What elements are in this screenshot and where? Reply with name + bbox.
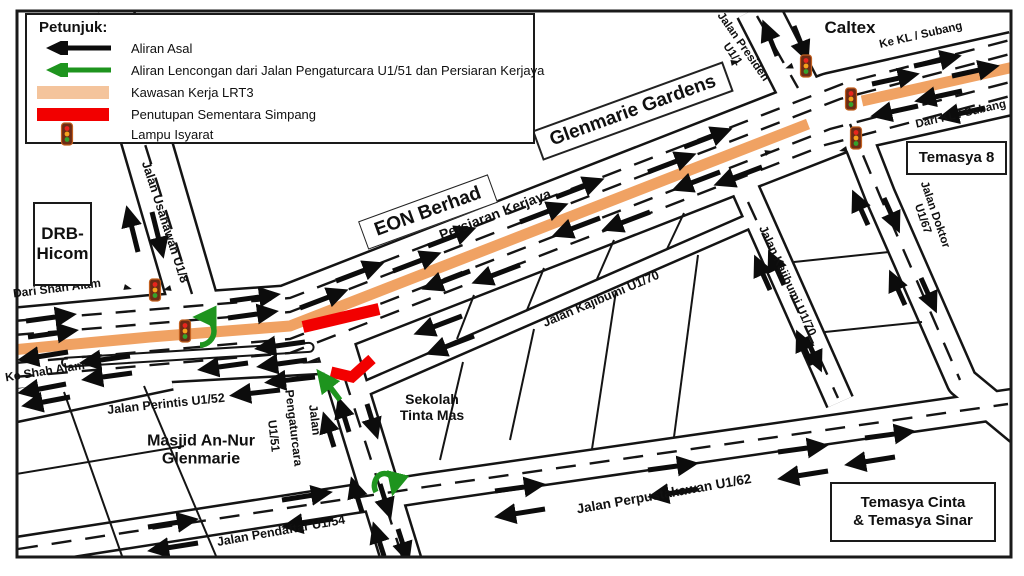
place-masjid: Masjid An-Nur Glenmarie	[147, 433, 255, 470]
closure-swatch	[37, 108, 109, 121]
legend-label: Aliran Lencongan dari Jalan Pengaturcara…	[131, 63, 544, 78]
place-temasya-cinta-sinar: Temasya Cinta & Temasya Sinar	[830, 482, 996, 542]
road-label-pengaturcara-word1: Jalan	[305, 404, 322, 436]
place-temasya-cinta-line2: & Temasya Sinar	[853, 512, 973, 530]
traffic-light-icon	[150, 279, 161, 301]
place-sekolah-line1: Sekolah	[400, 391, 464, 407]
place-drb-hicom: DRB- Hicom	[33, 202, 92, 286]
traffic-light-icon	[851, 127, 862, 149]
place-masjid-line2: Glenmarie	[147, 451, 255, 469]
place-masjid-line1: Masjid An-Nur	[147, 433, 255, 451]
place-temasya-8: Temasya 8	[906, 141, 1007, 175]
place-drb-hicom-line2: Hicom	[37, 244, 89, 264]
place-temasya-cinta-line1: Temasya Cinta	[861, 494, 966, 512]
road-label-pengaturcara-word3: U1/51	[264, 419, 282, 452]
legend-row-traffic-light: Lampu Isyarat	[37, 125, 213, 143]
legend-box: Petunjuk: Aliran Asal Aliran Lencongan d…	[25, 13, 535, 144]
place-drb-hicom-line1: DRB-	[41, 224, 84, 244]
traffic-light-icon	[180, 320, 191, 342]
legend-label: Kawasan Kerja LRT3	[131, 85, 254, 100]
traffic-diversion-map: Caltex Ke KL / Subang Dari KL / Subang J…	[0, 0, 1024, 576]
legend-label: Penutupan Sementara Simpang	[131, 107, 316, 122]
original-flow-arrow-icon	[37, 41, 117, 55]
legend-row-original-flow: Aliran Asal	[37, 39, 192, 57]
diversion-flow-arrow-icon	[37, 63, 117, 77]
place-caltex: Caltex	[824, 18, 875, 38]
legend-row-work-zone: Kawasan Kerja LRT3	[37, 83, 254, 101]
legend-label: Lampu Isyarat	[131, 127, 213, 142]
traffic-light-icon	[37, 120, 97, 148]
place-sekolah-line2: Tinta Mas	[400, 407, 464, 423]
legend-title: Petunjuk:	[39, 19, 107, 36]
legend-label: Aliran Asal	[131, 41, 192, 56]
place-sekolah-tinta-mas: Sekolah Tinta Mas	[400, 391, 464, 423]
place-temasya-8-label: Temasya 8	[919, 149, 995, 167]
traffic-light-icon	[801, 55, 812, 77]
work-zone-swatch	[37, 86, 109, 99]
traffic-light-icon	[846, 88, 857, 110]
legend-row-diversion-flow: Aliran Lencongan dari Jalan Pengaturcara…	[37, 61, 544, 79]
